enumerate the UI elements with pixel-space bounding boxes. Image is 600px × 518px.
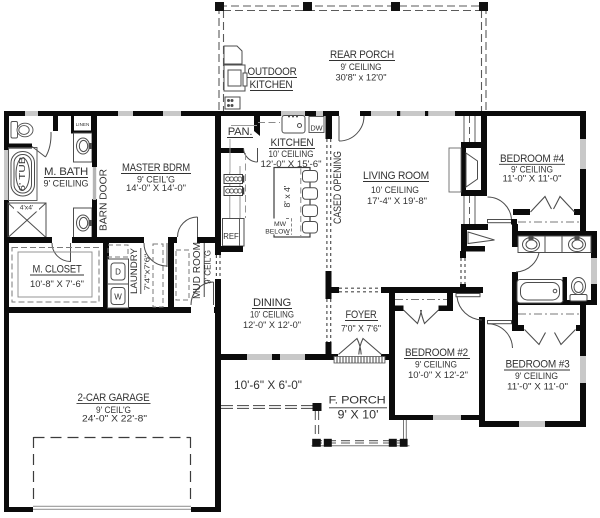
svg-text:6' TUB: 6' TUB — [18, 156, 27, 192]
svg-text:7'4"x7'6": 7'4"x7'6" — [143, 253, 152, 290]
svg-text:BELOW: BELOW — [265, 229, 290, 236]
svg-text:DW: DW — [310, 124, 322, 133]
svg-text:11'-0" X 11'-0": 11'-0" X 11'-0" — [507, 382, 568, 392]
svg-text:4'x4': 4'x4' — [20, 205, 34, 212]
svg-text:F. PORCH: F. PORCH — [329, 395, 386, 407]
svg-text:DINING: DINING — [253, 297, 291, 309]
svg-text:9' CEILING: 9' CEILING — [515, 371, 558, 381]
svg-text:PAN.: PAN. — [228, 126, 253, 138]
svg-text:9' X 10': 9' X 10' — [338, 410, 379, 422]
svg-text:14'-0" X 14'-0": 14'-0" X 14'-0" — [126, 183, 186, 193]
svg-text:10' CEILING: 10' CEILING — [250, 310, 294, 320]
svg-text:9' CEILING: 9' CEILING — [44, 179, 89, 189]
svg-text:M. BATH: M. BATH — [44, 166, 88, 178]
svg-text:10' CEILING: 10' CEILING — [269, 149, 314, 159]
svg-text:2-CAR GARAGE: 2-CAR GARAGE — [78, 392, 150, 404]
svg-text:30'8" x 12'0": 30'8" x 12'0" — [336, 73, 387, 83]
svg-text:MUD ROOM: MUD ROOM — [192, 242, 203, 299]
svg-text:CASED OPENING: CASED OPENING — [332, 151, 344, 224]
svg-text:LIVING ROOM: LIVING ROOM — [363, 170, 429, 182]
svg-text:9' CEILING: 9' CEILING — [341, 62, 382, 72]
svg-text:7'0" X 7'6": 7'0" X 7'6" — [341, 324, 381, 334]
svg-text:BEDROOM #4: BEDROOM #4 — [500, 153, 564, 165]
svg-text:BEDROOM #3: BEDROOM #3 — [506, 359, 570, 371]
svg-text:10'-0" X 12'-2": 10'-0" X 12'-2" — [408, 370, 468, 380]
svg-text:D: D — [115, 268, 121, 277]
svg-text:9' CEILING: 9' CEILING — [415, 360, 457, 370]
svg-text:9' CEIL'G: 9' CEIL'G — [204, 250, 213, 284]
svg-text:REAR PORCH: REAR PORCH — [330, 49, 394, 61]
svg-text:MASTER BDRM: MASTER BDRM — [122, 162, 190, 174]
svg-text:12'-0" X 12'-0": 12'-0" X 12'-0" — [243, 320, 301, 330]
svg-text:REF: REF — [223, 232, 239, 241]
svg-text:M. CLOSET: M. CLOSET — [33, 264, 82, 276]
svg-text:KITCHEN: KITCHEN — [250, 79, 293, 91]
svg-text:LINEN: LINEN — [76, 122, 90, 127]
svg-text:24'-0" X 22'-8": 24'-0" X 22'-8" — [82, 414, 147, 424]
svg-text:11'-0" X 11'-0": 11'-0" X 11'-0" — [503, 174, 562, 184]
svg-text:BEDROOM #2: BEDROOM #2 — [405, 347, 468, 359]
svg-text:10'-8" X 7'-6": 10'-8" X 7'-6" — [30, 279, 84, 289]
svg-text:W: W — [114, 293, 122, 302]
svg-text:10'-6" X 6'-0": 10'-6" X 6'-0" — [234, 380, 302, 392]
svg-text:OUTDOOR: OUTDOOR — [248, 66, 297, 78]
svg-text:KITCHEN: KITCHEN — [271, 137, 314, 149]
svg-text:FOYER: FOYER — [346, 309, 377, 321]
svg-text:17'-4" X 19'-8": 17'-4" X 19'-8" — [367, 196, 427, 206]
svg-text:12'-0" X 15'-6": 12'-0" X 15'-6" — [261, 159, 322, 169]
svg-text:10' CEILING: 10' CEILING — [371, 185, 419, 195]
svg-text:MW: MW — [274, 221, 287, 228]
svg-text:BARN DOOR: BARN DOOR — [99, 169, 110, 231]
svg-text:LAUNDRY: LAUNDRY — [129, 247, 140, 294]
svg-text:8' x 4': 8' x 4' — [282, 185, 292, 207]
